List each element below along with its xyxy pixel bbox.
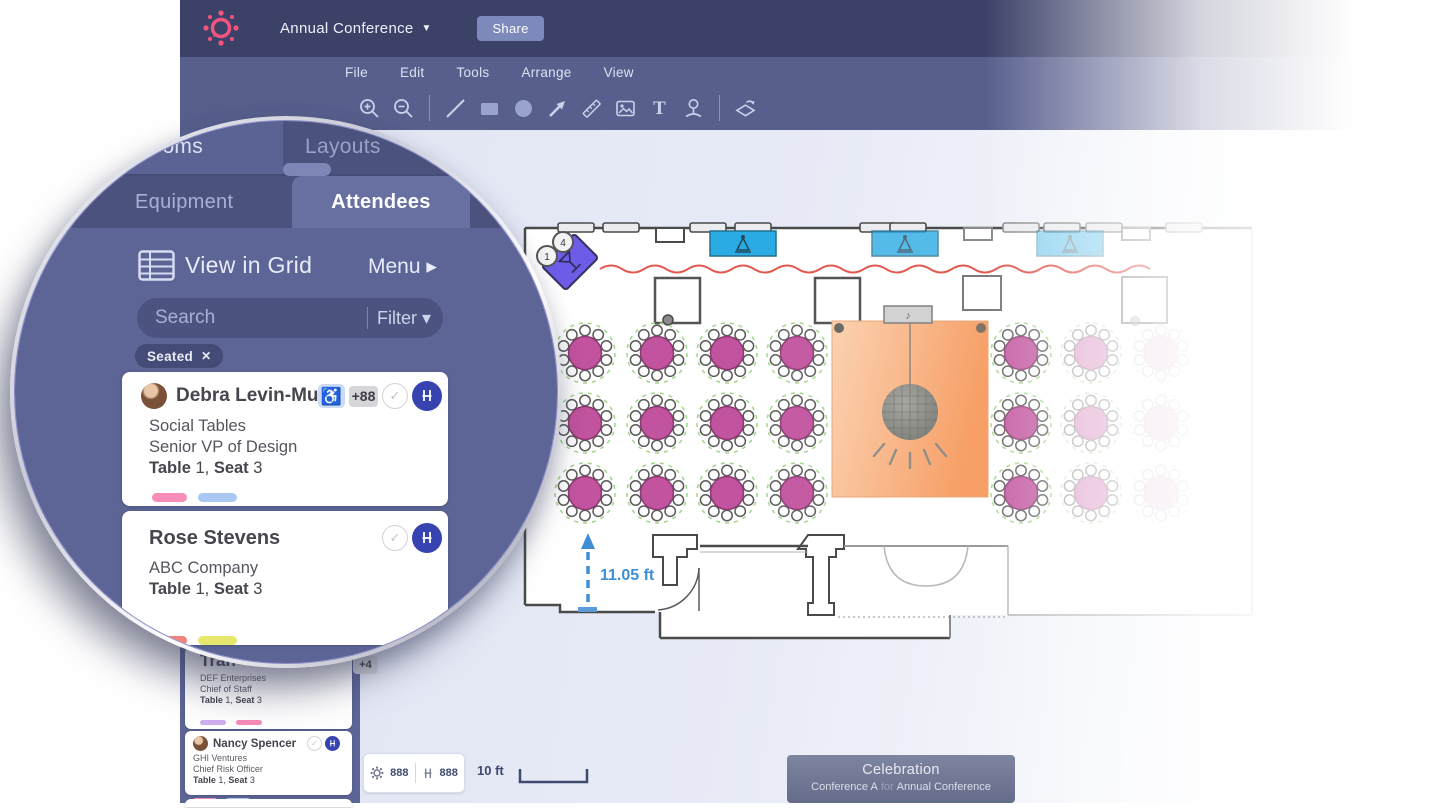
service-table[interactable] <box>815 278 860 323</box>
table-count: 888 <box>390 767 408 779</box>
toolbar-separator <box>429 95 430 121</box>
floor-outlet-icon <box>663 315 673 325</box>
attendee-card[interactable]: Nancy Spencer ✓ GHI Ventures Chief Risk … <box>185 731 352 795</box>
attendee-name: Rose Stevens <box>149 527 382 550</box>
avatar <box>193 736 208 751</box>
seat-count: 888 <box>440 767 458 779</box>
tag-pill <box>198 493 237 502</box>
room-label: Celebration Conference AforAnnual Confer… <box>787 755 1015 803</box>
flip-tool-icon[interactable] <box>734 97 757 120</box>
attendee-company: DEF Enterprises <box>200 673 352 684</box>
arrow-tool-icon[interactable] <box>546 97 569 120</box>
attendee-seat: Table 1, Seat 3 <box>149 458 448 479</box>
grid-view-icon[interactable] <box>138 250 175 281</box>
rectangle-tool-icon[interactable] <box>478 97 501 120</box>
menu-edit[interactable]: Edit <box>400 65 424 80</box>
seated-icon[interactable] <box>412 381 442 411</box>
event-title[interactable]: Annual Conference <box>280 20 414 37</box>
menu-file[interactable]: File <box>345 65 368 80</box>
attendee-card[interactable]: Debra Levin-Mu... ♿ +88 ✓ Social Tables … <box>122 372 448 506</box>
attendee-title: Chief Risk Officer <box>193 764 352 775</box>
menu-arrange[interactable]: Arrange <box>521 65 571 80</box>
dance-floor[interactable]: ♪ <box>832 306 988 497</box>
attendee-seat: Table 1, Seat 3 <box>149 579 448 600</box>
overflow-count-badge[interactable]: +88 <box>349 386 378 407</box>
attendee-company: GHI Ventures <box>193 753 352 764</box>
page: { "topbar": { "event_title": "Annual Con… <box>0 0 1435 803</box>
svg-text:♪: ♪ <box>905 310 911 322</box>
scale-label: 10 ft <box>477 763 504 778</box>
attendee-seat: Table 1, Seat 3 <box>193 775 352 786</box>
top-bar: Annual Conference ▼ Share <box>180 0 1435 57</box>
event-title-caret-icon[interactable]: ▼ <box>422 23 432 34</box>
attendee-name: Nancy Spencer <box>213 738 307 750</box>
seat-count-icon <box>422 767 434 780</box>
tab-layouts-label[interactable]: Layouts <box>305 135 381 159</box>
check-circle-icon[interactable]: ✓ <box>307 736 322 751</box>
menu-view[interactable]: View <box>604 65 634 80</box>
floor-outlet-icon <box>1131 317 1140 326</box>
beverage-station[interactable] <box>710 231 776 256</box>
image-tool-icon[interactable] <box>614 97 637 120</box>
seated-icon[interactable] <box>412 523 442 553</box>
line-tool-icon[interactable] <box>444 97 467 120</box>
wheelchair-icon: ♿ <box>318 384 345 408</box>
seated-filter-chip[interactable]: Seated ✕ <box>135 344 223 368</box>
tab-rooms-label[interactable]: Rooms <box>135 135 203 159</box>
filter-caret-icon: ▾ <box>422 308 431 328</box>
service-table[interactable] <box>963 276 1001 310</box>
counts-statusbar: 888 888 <box>363 753 465 793</box>
attendee-title: Senior VP of Design <box>149 437 448 458</box>
attendee-title: Chief of Staff <box>200 684 352 695</box>
svg-text:4: 4 <box>560 238 566 249</box>
attendee-seat: Table 1, Seat 3 <box>200 695 352 706</box>
attendee-card[interactable] <box>185 799 352 807</box>
service-table[interactable] <box>655 278 700 323</box>
table-count-icon <box>370 766 384 780</box>
zoom-out-icon[interactable] <box>392 97 415 120</box>
panel-resize-handle[interactable] <box>283 163 331 176</box>
tab-equipment[interactable]: Equipment <box>135 191 233 214</box>
attendee-name: Debra Levin-Mu... <box>176 385 318 407</box>
avatar <box>141 383 167 409</box>
attendee-card[interactable]: Rose Stevens ✓ ABC Company Table 1, Seat… <box>122 511 448 645</box>
attendee-company: ABC Company <box>149 558 448 579</box>
tag-pill <box>236 720 262 725</box>
layout-name: Celebration <box>787 762 1015 778</box>
search-input[interactable] <box>153 306 367 330</box>
toolbar-separator <box>719 95 720 121</box>
attendee-pin-tool-icon[interactable] <box>682 97 705 120</box>
view-in-grid-button[interactable]: View in Grid <box>185 252 312 279</box>
ruler-tool-icon[interactable] <box>580 97 603 120</box>
check-circle-icon[interactable]: ✓ <box>382 525 408 551</box>
tag-pill <box>152 493 187 502</box>
tab-attendees[interactable]: Attendees <box>292 176 470 228</box>
service-table[interactable] <box>1122 277 1167 323</box>
menu-bar: File Edit Tools Arrange View T <box>180 57 1435 130</box>
seated-icon[interactable] <box>325 736 340 751</box>
magnifier-lens: Rooms Layouts Equipment Attendees View i… <box>10 116 562 668</box>
tag-pill <box>152 636 187 645</box>
panel-menu-button[interactable]: Menu ▸ <box>368 254 437 279</box>
search-bar[interactable]: Filter ▾ <box>137 298 443 338</box>
share-button[interactable]: Share <box>477 16 543 41</box>
scale-bar <box>518 767 590 785</box>
zoom-in-icon[interactable] <box>358 97 381 120</box>
text-tool-icon[interactable]: T <box>648 97 671 120</box>
room-event-line: Conference AforAnnual Conference <box>787 781 1015 793</box>
toolbar: T <box>358 93 757 123</box>
ellipse-tool-icon[interactable] <box>512 97 535 120</box>
beverage-station[interactable] <box>1037 231 1103 256</box>
social-tables-logo-icon <box>198 6 244 52</box>
svg-text:11.05 ft: 11.05 ft <box>600 567 655 584</box>
chip-close-icon[interactable]: ✕ <box>201 349 211 363</box>
filter-button[interactable]: Filter ▾ <box>377 308 431 329</box>
tag-pill <box>198 636 237 645</box>
magnifier-lens-content: Rooms Layouts Equipment Attendees View i… <box>15 121 557 663</box>
beverage-station[interactable] <box>872 231 938 256</box>
check-circle-icon[interactable]: ✓ <box>382 383 408 409</box>
attendee-company: Social Tables <box>149 416 448 437</box>
menu-tools[interactable]: Tools <box>456 65 489 80</box>
tag-pill <box>200 720 226 725</box>
